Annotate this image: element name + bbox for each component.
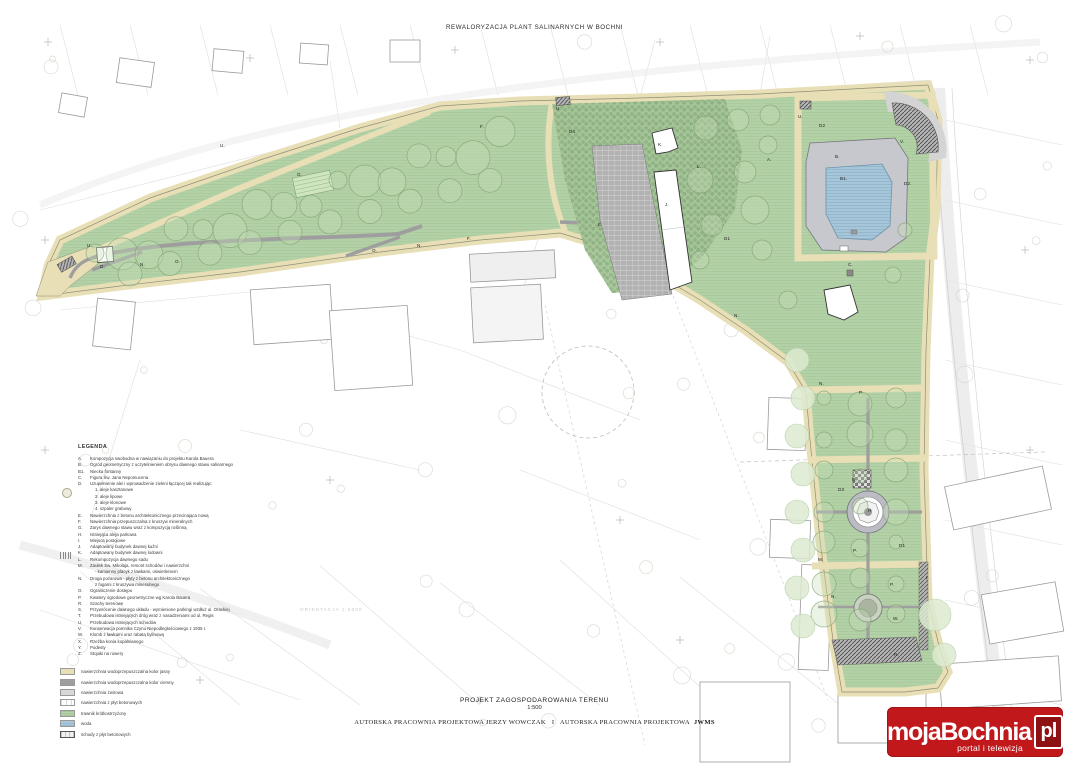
plan-label: N. bbox=[734, 313, 739, 318]
plan-label: D1 bbox=[724, 236, 730, 241]
logo-name: mojaBochnia bbox=[887, 720, 1031, 745]
plan-label: N. bbox=[819, 381, 824, 386]
plan-label: U. bbox=[220, 143, 225, 148]
logo-tagline: portal i telewizja bbox=[957, 743, 1023, 753]
legend-swatch-row: schody z płyt betonowych bbox=[60, 729, 295, 739]
plan-label: A. bbox=[767, 157, 772, 162]
plan-label: U. bbox=[798, 114, 803, 119]
legend-circle-icon bbox=[62, 488, 72, 498]
plan-label: L. bbox=[697, 164, 701, 169]
plan-label: K. bbox=[658, 142, 663, 147]
legend-swatch-row: nawierzchnia wodoprzepuszczalna kolor ja… bbox=[60, 667, 295, 677]
plan-label: O. bbox=[372, 248, 377, 253]
plan-label: P. bbox=[853, 548, 857, 553]
plan-label: B. bbox=[835, 154, 840, 159]
site-plan-sheet: REWALORYZACJA PLANT SALINARNYCH W BOCHNI… bbox=[0, 0, 1069, 766]
plan-label: N. bbox=[831, 594, 836, 599]
plan-label: N. bbox=[140, 262, 145, 267]
plan-label: P. bbox=[890, 582, 894, 587]
credit-left: AUTORSKA PRACOWNIA PROJEKTOWA JERZY WOWC… bbox=[354, 719, 546, 726]
plan-label: J. bbox=[665, 202, 669, 207]
plan-label: E. bbox=[598, 222, 603, 227]
plan-label: U. bbox=[556, 106, 561, 111]
plan-label: I. bbox=[926, 575, 929, 580]
legend-title: LEGENDA bbox=[78, 444, 295, 450]
plan-label: O. bbox=[175, 259, 180, 264]
plan-label: F. bbox=[467, 236, 471, 241]
legend-item: Z.Stojaki na rowery bbox=[60, 651, 295, 657]
legend-parking-icon bbox=[60, 552, 71, 559]
sheet-title: REWALORYZACJA PLANT SALINARNYCH W BOCHNI bbox=[0, 24, 1069, 31]
plan-label: D. bbox=[100, 264, 105, 269]
plan-label: D1 bbox=[899, 543, 905, 548]
legend-swatch-row: woda bbox=[60, 718, 295, 728]
plan-label: D2 bbox=[819, 123, 825, 128]
geometric-garden-pond bbox=[806, 138, 908, 252]
orientation-note: ORIENTACJA 1:5000 bbox=[300, 607, 363, 612]
logo-tld-badge: pl bbox=[1034, 715, 1063, 749]
swatch-stairs bbox=[60, 731, 75, 738]
swatch-grass bbox=[60, 710, 75, 717]
parking-hatched bbox=[832, 637, 922, 665]
legend: LEGENDA A.Kompozycja swobodna w nawiązan… bbox=[60, 444, 295, 739]
pond-water bbox=[826, 164, 892, 240]
legend-swatch-row: nawierzchnia wodoprzepuszczalna kolor ci… bbox=[60, 677, 295, 687]
credit-right: AUTORSKA PRACOWNIA PROJEKTOWA bbox=[560, 719, 690, 726]
swatch-tan bbox=[60, 668, 75, 675]
plan-label: G. bbox=[297, 172, 302, 177]
plan-label: N. bbox=[894, 652, 899, 657]
legend-swatch-row: trawnik krótkostrzyżony bbox=[60, 708, 295, 718]
plan-label: N. bbox=[417, 243, 422, 248]
legend-swatches: nawierzchnia wodoprzepuszczalna kolor ja… bbox=[60, 667, 295, 740]
plan-label: H bbox=[868, 508, 872, 513]
plan-label: R. bbox=[852, 477, 857, 482]
swatch-water bbox=[60, 720, 75, 727]
plan-label: C. bbox=[848, 262, 853, 267]
mojabochnia-logo[interactable]: mojaBochnia pl portal i telewizja bbox=[887, 707, 1063, 757]
swatch-plates bbox=[60, 699, 75, 706]
legend-swatch-row: nawierzchnia z płyt betonowych bbox=[60, 698, 295, 708]
figure-c bbox=[847, 270, 853, 276]
plan-label: D2. bbox=[904, 181, 912, 186]
swatch-gray bbox=[60, 689, 75, 696]
plan-label: F. bbox=[480, 124, 484, 129]
plan-label: P. bbox=[859, 390, 863, 395]
plan-label: D4 bbox=[569, 129, 575, 134]
plan-label: W. bbox=[893, 616, 899, 621]
credit-separator: I bbox=[552, 719, 555, 726]
swatch-darkgray bbox=[60, 679, 75, 686]
plan-label: V. bbox=[900, 139, 904, 144]
credit-studio: JWMS bbox=[694, 719, 715, 726]
legend-swatch-row: nawierzchnia żwirowa bbox=[60, 687, 295, 697]
plan-label: B1. bbox=[840, 176, 848, 181]
plan-label: M. bbox=[818, 557, 824, 562]
legend-items: A.Kompozycja swobodna w nawiązaniu do pr… bbox=[60, 456, 295, 658]
plan-label: U. bbox=[87, 243, 92, 248]
plan-label: D3 bbox=[838, 487, 844, 492]
